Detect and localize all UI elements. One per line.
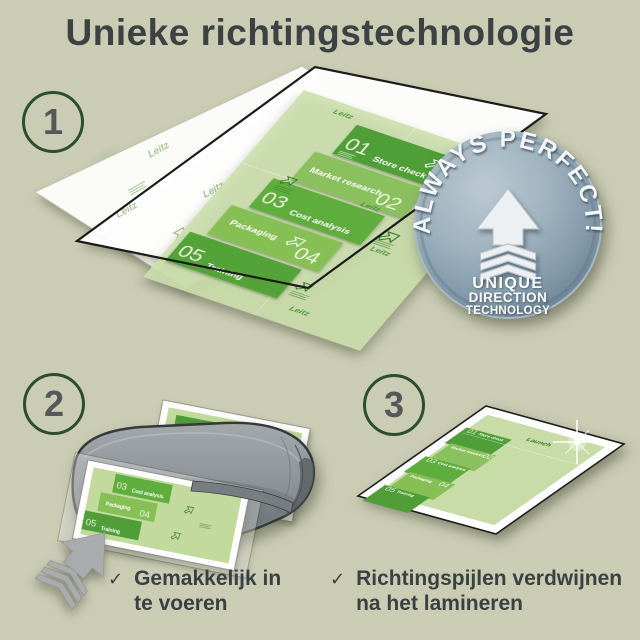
fine-print-lines bbox=[288, 290, 310, 300]
pouch-border bbox=[77, 67, 546, 288]
check-icon: ✓ bbox=[330, 569, 345, 590]
launch-label: Launch bbox=[244, 437, 268, 448]
step-2-marker: 2 bbox=[23, 373, 85, 435]
tile-01-label: Store check bbox=[191, 433, 220, 444]
lamination-pouch bbox=[77, 67, 546, 288]
direction-arrow-icon bbox=[169, 529, 184, 543]
caption-arrows-disappear-line2: na het lamineren bbox=[356, 591, 622, 616]
tile-05-label: Training bbox=[395, 490, 416, 498]
badge-line-unique: UNIQUE bbox=[472, 275, 543, 292]
green-sheet bbox=[143, 90, 521, 351]
entering-document: 01 Store check Launch bbox=[145, 400, 310, 522]
tile-01-number: 01 bbox=[464, 428, 482, 436]
fine-print-lines bbox=[199, 523, 212, 529]
direction-arrow-icon bbox=[166, 221, 195, 250]
mini-tile-05: 05 Training bbox=[363, 484, 432, 513]
tile-03-label: Cost analysis bbox=[131, 488, 164, 500]
caption-easy-feed-line1: Gemakkelijk in bbox=[134, 566, 281, 591]
check-icon: ✓ bbox=[108, 569, 123, 590]
step-1-marker: 1 bbox=[22, 91, 84, 153]
sparkle-icon bbox=[553, 420, 601, 464]
badge-arrow-icon bbox=[477, 189, 539, 281]
infographic-canvas: Unieke richtingstechnologie Leitz bbox=[0, 0, 640, 640]
direction-arrow-icon bbox=[290, 277, 319, 296]
tile-04-label: Packaging bbox=[409, 474, 435, 483]
tile-01-label: Store check bbox=[370, 155, 430, 180]
fine-print-lines bbox=[128, 181, 147, 195]
leitz-watermark: Leitz bbox=[358, 201, 383, 214]
badge-line-technology: TECHNOLOGY bbox=[466, 305, 550, 317]
tile-04-number: 04 bbox=[138, 508, 151, 521]
tile-01-label: Store check bbox=[477, 432, 506, 442]
tile-04-label: Packaging bbox=[227, 219, 279, 242]
tile-02: Market research 02 bbox=[290, 151, 426, 218]
direction-arrow-icon bbox=[419, 154, 451, 175]
leitz-watermark: Leitz bbox=[287, 305, 312, 318]
leitz-watermark: Leitz bbox=[91, 145, 114, 164]
mini-tile-01: 01 Store check bbox=[445, 426, 514, 455]
tile-05-number: 05 bbox=[382, 485, 400, 493]
tile-01-number: 01 bbox=[176, 424, 189, 437]
end-cap bbox=[283, 458, 314, 517]
tile-02-number: 02 bbox=[480, 453, 498, 461]
tile-03-label: Cost analysis bbox=[287, 208, 353, 235]
laminator-body bbox=[73, 423, 314, 545]
leitz-watermark: Leitz bbox=[114, 200, 139, 221]
tile-05-label: Training bbox=[204, 262, 246, 281]
fine-print-lines bbox=[337, 151, 356, 160]
leitz-watermark: Leitz bbox=[201, 180, 226, 201]
leitz-watermark: Leitz bbox=[146, 140, 171, 161]
exit-slot bbox=[101, 489, 291, 505]
tile-03-label: Cost analysis bbox=[436, 461, 468, 472]
back-sheet: Leitz bbox=[35, 66, 452, 288]
direction-arrow-icon bbox=[372, 226, 407, 248]
step1-illustration: Leitz Leitz Leitz Leitz 01 Stor bbox=[0, 40, 640, 375]
caption-arrows-disappear: ✓ Richtingspijlen verdwijnen na het lami… bbox=[330, 566, 622, 616]
tile-05-number: 05 bbox=[85, 517, 98, 530]
front-face bbox=[81, 478, 299, 538]
caption-easy-feed-line2: te voeren bbox=[134, 591, 281, 616]
caption-easy-feed: ✓ Gemakkelijk in te voeren bbox=[108, 566, 281, 616]
tile-01-number: 01 bbox=[339, 135, 376, 159]
tile-05-label: Training bbox=[100, 526, 120, 536]
end-cap-seam bbox=[275, 437, 290, 515]
leitz-watermark: Leitz bbox=[368, 245, 393, 258]
mini-tile-03: 03 Cost analysis bbox=[404, 455, 473, 484]
direction-arrow-icon bbox=[250, 457, 267, 473]
tile-05: 05 Training bbox=[165, 232, 301, 299]
step-2-number: 2 bbox=[44, 383, 64, 425]
tile-04-number: 04 bbox=[288, 244, 325, 268]
tile-03: 03 Cost analysis bbox=[249, 178, 385, 245]
fine-print-lines bbox=[177, 448, 191, 455]
fine-print-lines bbox=[272, 185, 294, 195]
tile-03-number: 03 bbox=[256, 189, 293, 213]
tile-02-number: 02 bbox=[370, 190, 407, 214]
green-document: 01 Store check Market research 02 03 Cos… bbox=[143, 90, 522, 351]
caption-arrows-disappear-line1: Richtingspijlen verdwijnen bbox=[356, 566, 622, 591]
badge-arc-text-wrap: ALWAYS PERFECT! bbox=[409, 126, 607, 236]
tile-05-number: 05 bbox=[173, 242, 210, 266]
step-1-number: 1 bbox=[43, 101, 63, 143]
launch-label: Launch bbox=[524, 437, 553, 447]
leitz-watermark: Leitz bbox=[331, 108, 356, 121]
exit-slot-shadow bbox=[101, 493, 291, 509]
laminator-illustration: 01 Store check Launch 03 Cost analysis bbox=[45, 385, 345, 580]
always-perfect-badge: ALWAYS PERFECT! UNIQUE DIRECTION TECHNOL… bbox=[408, 125, 612, 329]
launch-label: Launch bbox=[450, 172, 503, 197]
tile-04-number: 04 bbox=[436, 481, 454, 489]
pouch-film-edge bbox=[58, 452, 264, 578]
slot-lip bbox=[191, 481, 293, 513]
pouch-watermarks: Leitz Leitz Leitz bbox=[114, 140, 226, 252]
step-3-number: 3 bbox=[384, 384, 404, 426]
tile-01: 01 Store check bbox=[332, 125, 468, 192]
exiting-document: 03 Cost analysis Packaging 04 05 Trainin… bbox=[58, 452, 264, 578]
fine-print-lines bbox=[186, 235, 209, 252]
leitz-watermark: Leitz bbox=[463, 169, 488, 182]
tile-03-number: 03 bbox=[115, 480, 128, 493]
end-cap-seam bbox=[289, 445, 303, 511]
document-watermarks: Leitz Leitz Leitz Leitz Leitz bbox=[190, 108, 499, 334]
mini-tile-04: Packaging 04 bbox=[388, 472, 456, 500]
tile-02-label: Market research bbox=[307, 166, 385, 197]
direction-arrow-icon bbox=[182, 503, 197, 517]
tile-03-number: 03 bbox=[423, 456, 441, 464]
body-highlight bbox=[85, 433, 299, 461]
badge-disc bbox=[415, 132, 601, 318]
badge-arc-text: ALWAYS PERFECT! bbox=[409, 126, 607, 236]
tile-02-label: Market research bbox=[450, 446, 487, 458]
direction-arrow-icon bbox=[280, 232, 312, 253]
tile-04-label: Packaging bbox=[105, 501, 131, 512]
fine-print-lines bbox=[372, 239, 394, 249]
mini-tile-02: Market research 02 bbox=[429, 443, 497, 471]
direction-arrow-icon bbox=[274, 172, 303, 191]
badge-inner-rim bbox=[421, 138, 595, 312]
step-3-marker: 3 bbox=[363, 374, 425, 436]
tile-04: Packaging 04 bbox=[207, 205, 343, 272]
badge-line-direction: DIRECTION bbox=[469, 290, 548, 305]
page-title: Unieke richtingstechnologie bbox=[0, 12, 640, 54]
